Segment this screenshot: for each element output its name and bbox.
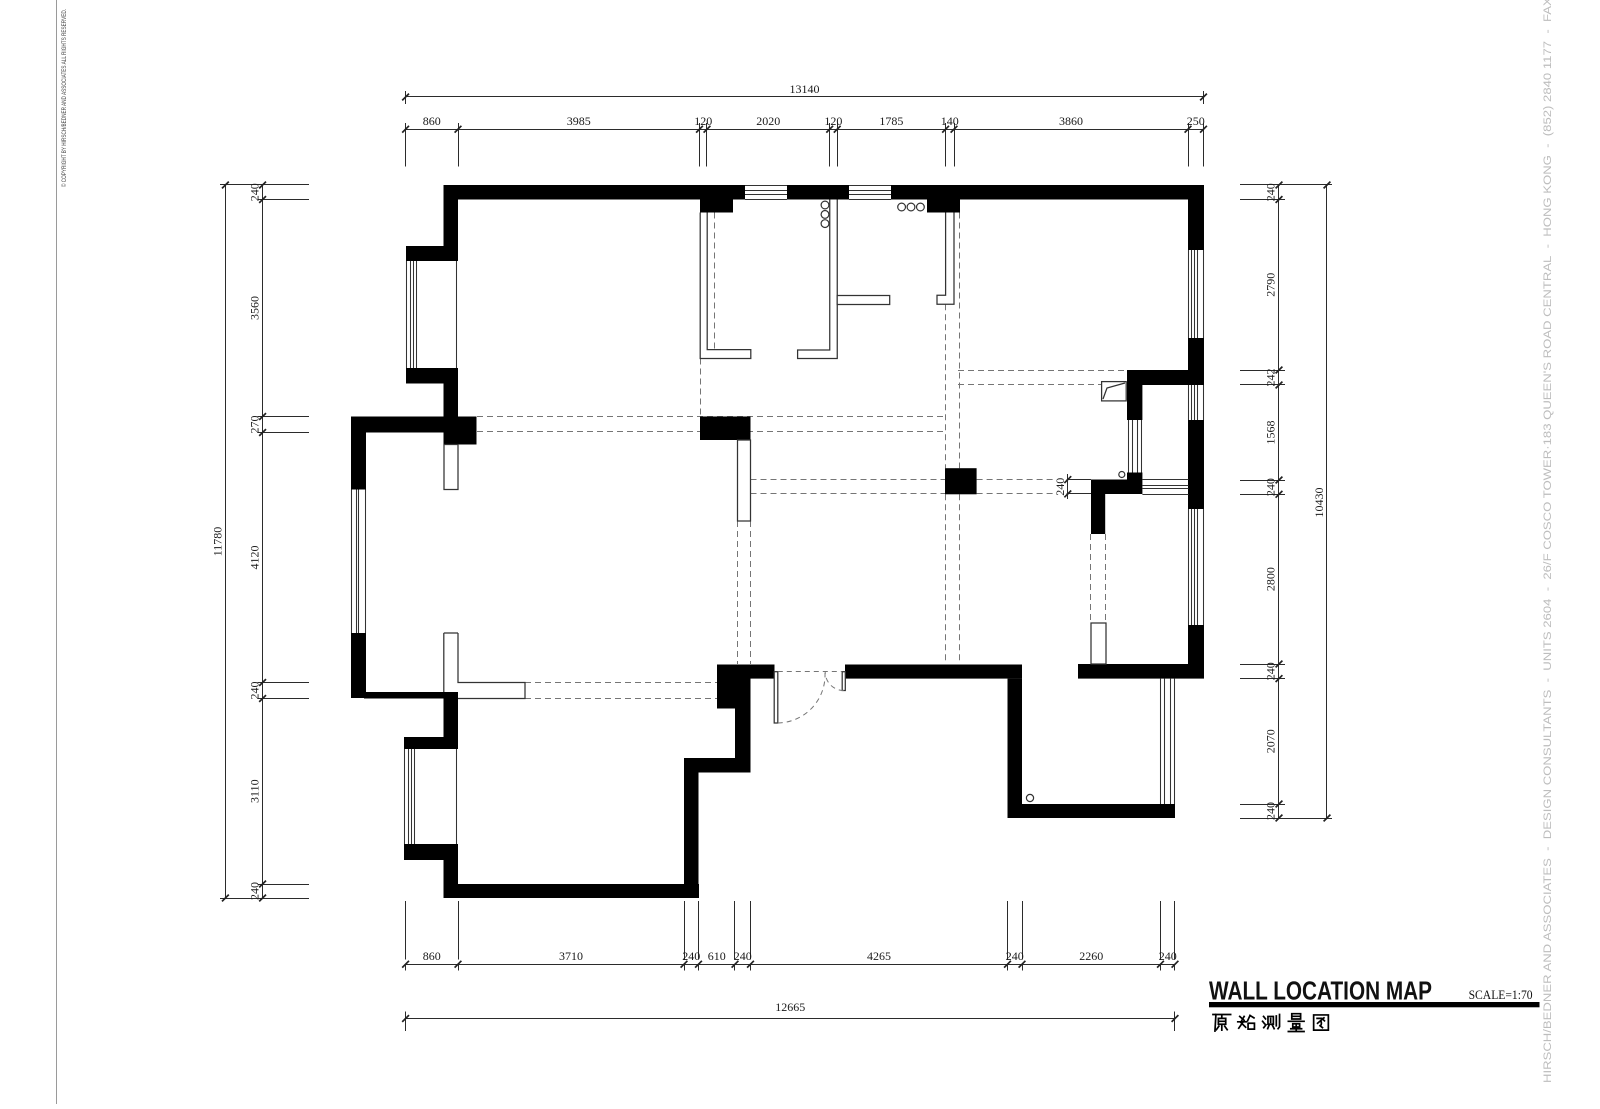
svg-text:3860: 3860 [1059,114,1083,128]
svg-text:240: 240 [1264,802,1278,820]
svg-text:WALL LOCATION MAP: WALL LOCATION MAP [1209,976,1432,1006]
svg-text:240: 240 [248,682,262,700]
svg-text:860: 860 [423,949,441,963]
svg-text:4265: 4265 [867,949,891,963]
svg-text:240: 240 [1264,478,1278,496]
svg-text:1785: 1785 [879,114,903,128]
svg-text:120: 120 [694,114,712,128]
svg-text:860: 860 [423,114,441,128]
svg-text:120: 120 [824,114,842,128]
svg-text:3985: 3985 [567,114,591,128]
svg-text:242: 242 [1264,369,1278,387]
svg-text:240: 240 [1264,662,1278,680]
svg-text:SCALE=1:70: SCALE=1:70 [1469,988,1533,1002]
svg-text:240: 240 [1053,478,1067,496]
svg-text:12665: 12665 [775,1000,805,1014]
svg-text:3560: 3560 [248,296,262,320]
svg-text:240: 240 [248,183,262,201]
svg-text:240: 240 [682,949,700,963]
svg-text:HIRSCH/BEDNER AND ASSOCIATES: HIRSCH/BEDNER AND ASSOCIATES - DESIGN CO… [1542,0,1554,1083]
svg-text:240: 240 [1159,949,1177,963]
svg-text:610: 610 [708,949,726,963]
svg-text:240: 240 [1006,949,1024,963]
svg-text:3110: 3110 [248,779,262,803]
svg-text:240: 240 [248,882,262,900]
svg-text:3710: 3710 [559,949,583,963]
svg-text:© COPYRIGHT BY HIRSCH/BEDNER A: © COPYRIGHT BY HIRSCH/BEDNER AND ASSOCIA… [60,9,68,187]
svg-text:10430: 10430 [1312,488,1326,518]
svg-text:13140: 13140 [790,82,820,96]
svg-text:2070: 2070 [1264,729,1278,753]
svg-text:140: 140 [941,114,959,128]
svg-text:240: 240 [734,949,752,963]
svg-text:2020: 2020 [756,114,780,128]
svg-text:2790: 2790 [1264,273,1278,297]
svg-text:240: 240 [1264,183,1278,201]
svg-text:4120: 4120 [248,546,262,570]
svg-text:2800: 2800 [1264,567,1278,591]
svg-text:1568: 1568 [1264,421,1278,445]
svg-text:270: 270 [248,416,262,434]
svg-text:11780: 11780 [211,527,225,557]
svg-text:2260: 2260 [1079,949,1103,963]
svg-text:250: 250 [1187,114,1205,128]
